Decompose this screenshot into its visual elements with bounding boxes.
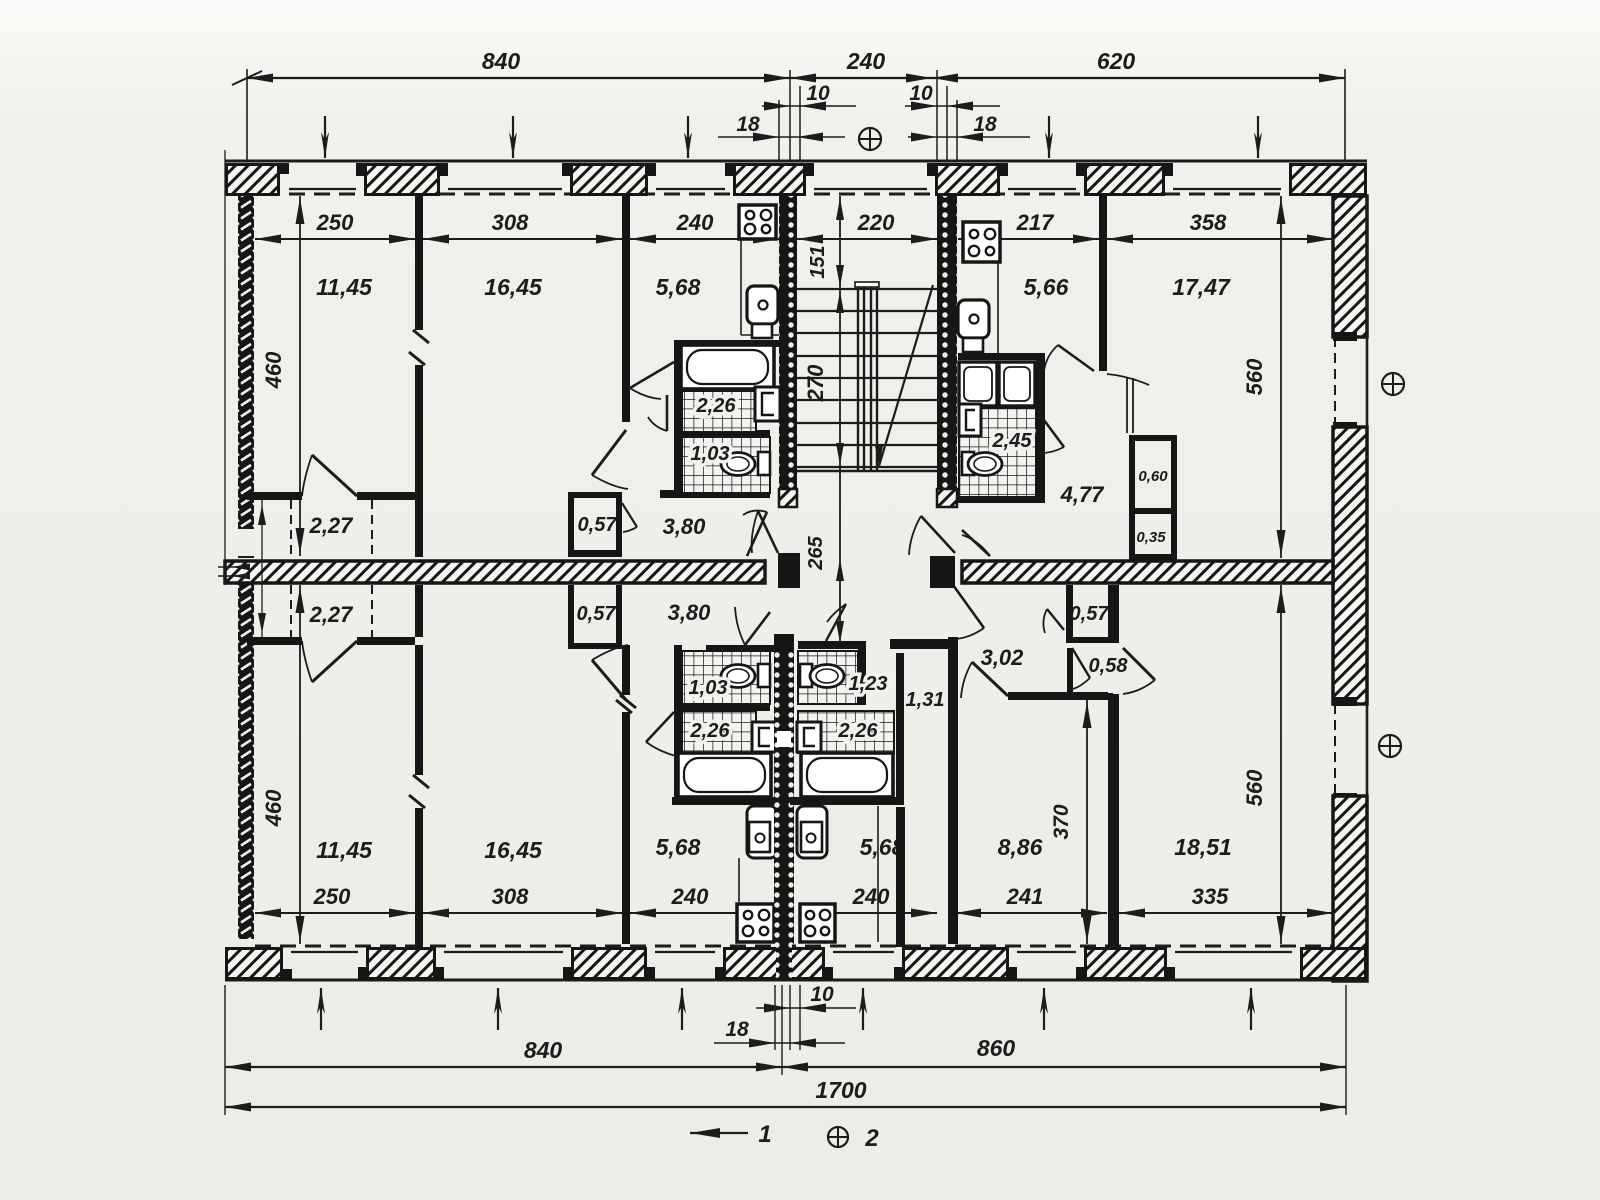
svg-text:2,27: 2,27: [309, 513, 355, 538]
svg-text:560: 560: [1242, 358, 1267, 395]
svg-text:1: 1: [758, 1121, 771, 1148]
svg-text:2,26: 2,26: [696, 395, 737, 417]
svg-text:2,45: 2,45: [992, 430, 1033, 452]
svg-text:1,03: 1,03: [689, 677, 728, 699]
svg-text:460: 460: [261, 351, 286, 389]
svg-text:5,66: 5,66: [1024, 274, 1069, 300]
svg-text:358: 358: [1190, 210, 1227, 235]
svg-text:11,45: 11,45: [316, 837, 373, 863]
svg-text:18,51: 18,51: [1174, 834, 1232, 860]
svg-text:8,86: 8,86: [998, 834, 1043, 860]
svg-text:11,45: 11,45: [316, 274, 373, 300]
svg-text:270: 270: [803, 364, 828, 402]
svg-text:1,23: 1,23: [849, 673, 888, 695]
svg-text:240: 240: [676, 210, 714, 235]
svg-text:10: 10: [909, 82, 933, 105]
svg-text:18: 18: [725, 1018, 749, 1041]
svg-text:2,26: 2,26: [838, 720, 879, 742]
svg-text:241: 241: [1006, 884, 1044, 909]
svg-text:5,68: 5,68: [656, 834, 701, 860]
svg-text:220: 220: [857, 210, 895, 235]
svg-text:1700: 1700: [815, 1077, 866, 1103]
svg-text:0,35: 0,35: [1136, 529, 1166, 546]
svg-text:151: 151: [807, 245, 829, 278]
svg-text:0,58: 0,58: [1089, 655, 1129, 677]
svg-text:18: 18: [973, 113, 997, 136]
svg-text:308: 308: [492, 210, 529, 235]
svg-text:860: 860: [977, 1035, 1016, 1061]
svg-text:217: 217: [1016, 210, 1055, 235]
svg-text:1,03: 1,03: [691, 443, 730, 465]
svg-text:240: 240: [846, 48, 886, 74]
svg-text:250: 250: [316, 210, 354, 235]
svg-text:560: 560: [1242, 769, 1267, 806]
svg-text:0,57: 0,57: [577, 603, 617, 625]
svg-text:620: 620: [1097, 48, 1136, 74]
svg-text:335: 335: [1192, 884, 1229, 909]
svg-text:18: 18: [736, 113, 760, 136]
svg-text:0,57: 0,57: [578, 514, 618, 536]
svg-text:370: 370: [1050, 804, 1073, 839]
svg-text:308: 308: [492, 884, 529, 909]
svg-text:250: 250: [313, 884, 351, 909]
svg-text:240: 240: [671, 884, 709, 909]
svg-text:10: 10: [806, 82, 830, 105]
svg-text:460: 460: [261, 789, 286, 827]
svg-text:10: 10: [810, 983, 834, 1006]
svg-text:840: 840: [482, 48, 521, 74]
svg-text:16,45: 16,45: [484, 274, 543, 300]
svg-text:17,47: 17,47: [1172, 274, 1231, 300]
svg-text:2,26: 2,26: [690, 720, 731, 742]
svg-text:2,27: 2,27: [309, 602, 355, 627]
svg-text:0,60: 0,60: [1138, 468, 1168, 485]
svg-text:2: 2: [864, 1125, 879, 1152]
svg-text:840: 840: [524, 1037, 563, 1063]
svg-text:4,77: 4,77: [1060, 482, 1106, 507]
svg-text:3,80: 3,80: [668, 600, 712, 625]
svg-text:3,80: 3,80: [663, 514, 707, 539]
svg-text:16,45: 16,45: [484, 837, 543, 863]
svg-text:265: 265: [805, 535, 827, 570]
svg-text:5,68: 5,68: [656, 274, 701, 300]
svg-text:1,31: 1,31: [906, 689, 945, 711]
svg-text:240: 240: [852, 884, 890, 909]
svg-text:3,02: 3,02: [981, 645, 1025, 670]
svg-text:0,57: 0,57: [1070, 603, 1110, 625]
